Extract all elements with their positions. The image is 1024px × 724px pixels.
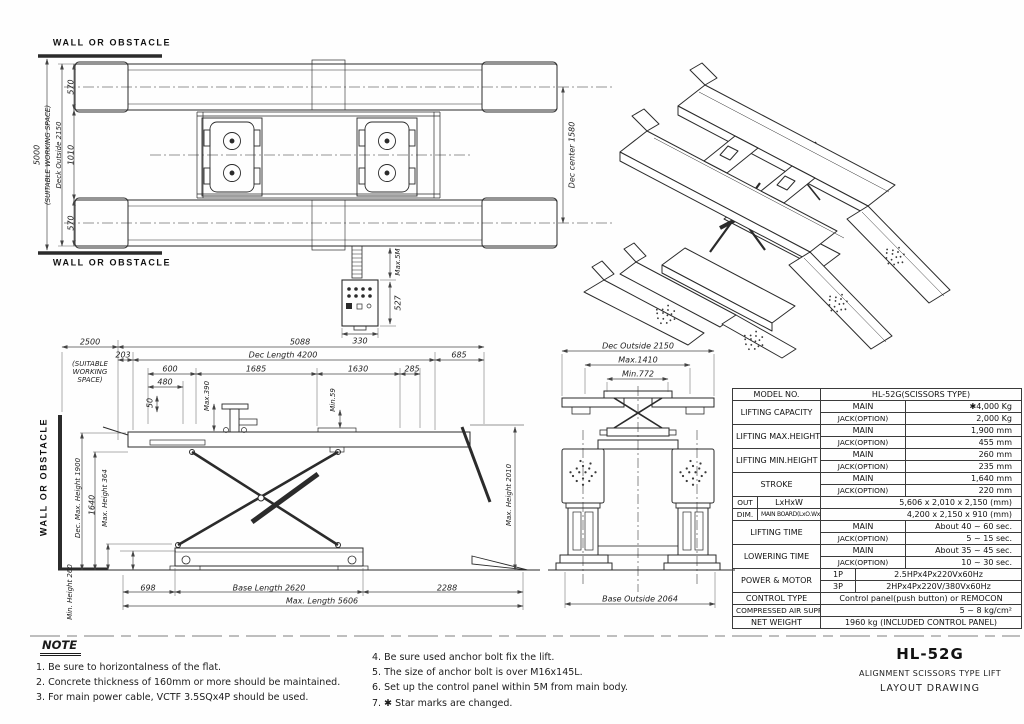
- spec-value: 455 mm: [906, 437, 1022, 449]
- note-item: 5. The size of anchor bolt is over M16x1…: [372, 665, 628, 680]
- dim-min59: Min.59: [329, 388, 337, 412]
- spec-value: 5 ~ 15 sec.: [906, 533, 1022, 545]
- spec-row-label: NET WEIGHT: [733, 617, 821, 629]
- dim-1640: 1640: [87, 495, 96, 515]
- dim-1010: 1010: [66, 145, 75, 165]
- dim-5088: 5088: [290, 337, 310, 346]
- dim-2500: 2500: [80, 337, 100, 346]
- spec-sub: 3P: [821, 581, 856, 593]
- spec-value: Control panel(push button) or REMOCON: [821, 593, 1022, 605]
- spec-value: 220 mm: [906, 485, 1022, 497]
- dim-max-height-364: Max. Height 364: [101, 469, 109, 527]
- dim-max390: Max.390: [203, 381, 211, 411]
- spec-sub: 1P: [821, 569, 856, 581]
- spec-value: 2.5HPx4Px220Vx60Hz: [856, 569, 1022, 581]
- dim-panel-527: 527: [393, 295, 402, 310]
- spec-row-label: STROKE: [733, 473, 821, 497]
- spec-outdim-a: OUT: [733, 497, 758, 509]
- note-item: 2. Concrete thickness of 160mm or more s…: [36, 675, 340, 690]
- spec-model-value: HL-52G(SCISSORS TYPE): [821, 389, 1022, 401]
- spec-sub: MAIN: [821, 473, 906, 485]
- spec-row-label: COMPRESSED AIR SUPPLY: [733, 605, 821, 617]
- spec-sub: JACK(OPTION): [821, 437, 906, 449]
- spec-value: 2HPx4Px220V/380Vx60Hz: [856, 581, 1022, 593]
- spec-sub: JACK(OPTION): [821, 413, 906, 425]
- title-lift-type: ALIGNMENT SCISSORS TYPE LIFT: [850, 669, 1010, 678]
- note-item: 6. Set up the control panel within 5M fr…: [372, 680, 628, 695]
- dim-50: 50: [145, 398, 154, 408]
- spec-sub: MAIN: [821, 425, 906, 437]
- dim-min-772: Min.772: [622, 369, 654, 378]
- note-item: 3. For main power cable, VCTF 3.5SQx4P s…: [36, 690, 340, 705]
- dim-dec-max-height-1900: Dec. Max. Height 1900: [74, 458, 82, 538]
- spec-value: 10 ~ 30 sec.: [906, 557, 1022, 569]
- dim-1685: 1685: [246, 364, 266, 373]
- spec-model-label: MODEL NO.: [733, 389, 821, 401]
- dim-1630: 1630: [348, 364, 368, 373]
- dim-max-length-5606: Max. Length 5606: [286, 596, 358, 605]
- dim-base-length-2620: Base Length 2620: [233, 583, 306, 592]
- dim-cable-max5m: Max.5M: [394, 248, 402, 275]
- dim-203: 203: [115, 350, 130, 359]
- dim-685: 685: [451, 350, 466, 359]
- spec-row-label: LIFTING TIME: [733, 521, 821, 545]
- spec-value: 1,900 mm: [906, 425, 1022, 437]
- spec-value: ✱4,000 Kg: [906, 401, 1022, 413]
- spec-sub: MAIN: [821, 449, 906, 461]
- dim-min-height-260: Min. Height 260: [66, 564, 74, 620]
- note-item: 7. ✱ Star marks are changed.: [372, 696, 628, 711]
- spec-sub: JACK(OPTION): [821, 461, 906, 473]
- spec-row-label: LOWERING TIME: [733, 545, 821, 569]
- dim-570-top: 570: [66, 79, 75, 94]
- spec-outdim-b: DIM.: [733, 509, 758, 521]
- spec-row-label: LIFTING CAPACITY: [733, 401, 821, 425]
- dim-max-1410: Max.1410: [618, 355, 657, 364]
- plan-wall-label-top: WALL OR OBSTACLE: [53, 39, 171, 48]
- spec-row-label: POWER & MOTOR: [733, 569, 821, 593]
- dim-dec-outside-2150: Dec Outside 2150: [602, 341, 674, 350]
- plan-wall-label-bottom: WALL OR OBSTACLE: [53, 259, 171, 268]
- spec-value: 5,606 x 2,010 x 2,150 (mm): [821, 497, 1022, 509]
- spec-sub: MAIN BOARD(LxO.WxI.W): [758, 509, 821, 521]
- dim-max-height-2010: Max. Height 2010: [505, 464, 513, 526]
- spec-row-label: LIFTING MIN.HEIGHT: [733, 449, 821, 473]
- dim-2500-note: (SUITABLE WORKING SPACE): [72, 360, 108, 384]
- spec-sub: MAIN: [821, 521, 906, 533]
- dim-570-bottom: 570: [66, 215, 75, 230]
- spec-value: 1,640 mm: [906, 473, 1022, 485]
- side-wall-label: WALL OR OBSTACLE: [40, 418, 49, 536]
- spec-value: 1960 kg (INCLUDED CONTROL PANEL): [821, 617, 1022, 629]
- spec-row-label: CONTROL TYPE: [733, 593, 821, 605]
- spec-sub: JACK(OPTION): [821, 533, 906, 545]
- dim-working-space-5000: 5000: [32, 145, 41, 165]
- dim-2288: 2288: [437, 583, 457, 592]
- spec-value: 5 ~ 8 kg/cm²: [821, 605, 1022, 617]
- spec-table: MODEL NO. HL-52G(SCISSORS TYPE) LIFTING …: [732, 388, 1022, 629]
- spec-value: About 40 ~ 60 sec.: [906, 521, 1022, 533]
- title-model-number: HL-52G: [850, 645, 1010, 663]
- note-item: 4. Be sure used anchor bolt fix the lift…: [372, 650, 628, 665]
- spec-sub: LxHxW: [758, 497, 821, 509]
- notes-heading: NOTE: [40, 638, 81, 656]
- dim-600: 600: [162, 364, 177, 373]
- spec-sub: MAIN: [821, 401, 906, 413]
- spec-value: 235 mm: [906, 461, 1022, 473]
- spec-row-label: LIFTING MAX.HEIGHT: [733, 425, 821, 449]
- notes-list-left: 1. Be sure to horizontalness of the flat…: [36, 660, 340, 706]
- dim-base-outside-2064: Base Outside 2064: [602, 594, 678, 603]
- isometric-view: [584, 63, 950, 358]
- title-drawing-type: LAYOUT DRAWING: [850, 683, 1010, 694]
- dim-dec-center-1580: Dec center 1580: [567, 122, 576, 189]
- dim-698: 698: [140, 583, 155, 592]
- spec-sub: JACK(OPTION): [821, 485, 906, 497]
- dim-deck-outside-2150: Deck Outside 2150: [55, 122, 63, 189]
- front-view: [548, 351, 735, 608]
- plan-view: [38, 56, 614, 338]
- notes-list-right: 4. Be sure used anchor bolt fix the lift…: [372, 650, 628, 711]
- dim-285: 285: [404, 364, 419, 373]
- note-item: 1. Be sure to horizontalness of the flat…: [36, 660, 340, 675]
- side-view: [58, 340, 540, 610]
- dim-working-space-note: (SUITABLE WORKING SPACE): [44, 105, 52, 205]
- dim-panel-330: 330: [352, 336, 367, 345]
- spec-value: 2,000 Kg: [906, 413, 1022, 425]
- spec-sub: JACK(OPTION): [821, 557, 906, 569]
- dim-dec-length-4200: Dec Length 4200: [249, 350, 318, 359]
- spec-value: 260 mm: [906, 449, 1022, 461]
- spec-value: 4,200 x 2,150 x 910 (mm): [821, 509, 1022, 521]
- spec-sub: MAIN: [821, 545, 906, 557]
- drawing-sheet: WALL OR OBSTACLE WALL OR OBSTACLE 5000 (…: [0, 0, 1024, 724]
- dim-480: 480: [157, 377, 172, 386]
- spec-value: About 35 ~ 45 sec.: [906, 545, 1022, 557]
